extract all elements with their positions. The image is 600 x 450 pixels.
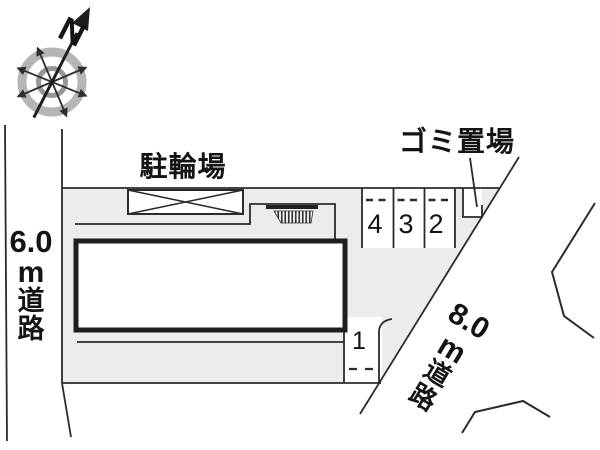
west-road-kanji-ro: 路: [18, 313, 46, 344]
building-outline: [76, 241, 345, 330]
site-plan-canvas: N 駐輪場 ゴミ置場 6.0 m 道 路 8.0 m 道 路 4 3 2 1: [0, 0, 600, 450]
space-number-3: 3: [398, 209, 413, 239]
neighbor-boundary-lower: [462, 401, 550, 433]
bike-parking-rect: [128, 190, 243, 214]
west-road-unit: m: [18, 256, 45, 289]
space-number-4: 4: [367, 209, 382, 239]
space-number-1: 1: [352, 327, 366, 355]
site-plan: N 駐輪場 ゴミ置場 6.0 m 道 路 8.0 m 道 路 4 3 2 1: [0, 0, 600, 450]
west-road-kanji-do: 道: [18, 285, 45, 316]
west-road-label: 6.0 m 道 路: [9, 224, 52, 344]
west-road-width: 6.0: [9, 224, 52, 259]
compass-rose: N: [18, 7, 92, 118]
west-road-outer-edge: [5, 125, 7, 441]
garbage-area-label: ゴミ置場: [399, 125, 515, 157]
space-number-2: 2: [428, 209, 443, 239]
bicycle-parking-label: 駐輪場: [139, 150, 226, 182]
garbage-area-box-fill: [463, 188, 482, 217]
neighbor-boundary-upper: [552, 203, 595, 338]
